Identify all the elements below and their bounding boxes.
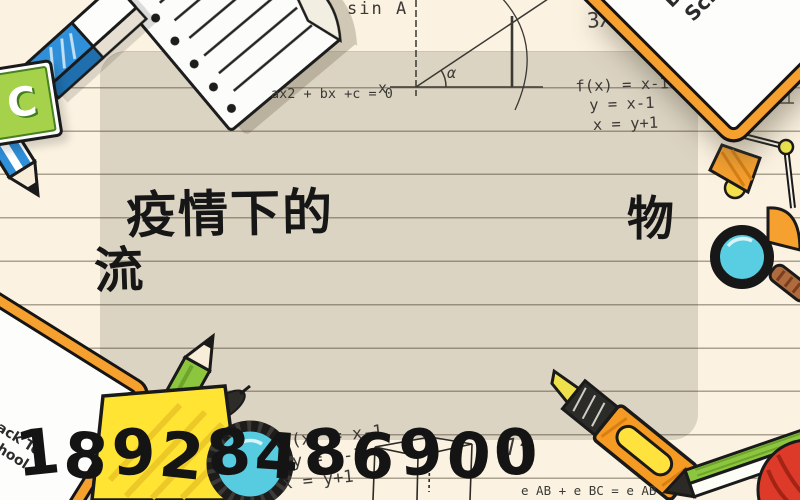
title-prefix: 疫情下的 bbox=[125, 172, 334, 248]
title-char-liu: 流 bbox=[93, 230, 146, 303]
formula-group-top: f(x) = x-1 y = x-1 x = y+1 bbox=[575, 74, 670, 134]
svg-text:x = y+1: x = y+1 bbox=[593, 114, 659, 134]
svg-text:f(x) = x-1: f(x) = x-1 bbox=[575, 74, 669, 95]
back-to-school-poster: Back To School bbox=[0, 0, 800, 500]
letter-card-letter: C bbox=[4, 78, 40, 128]
title-char-wu: 物 bbox=[627, 180, 676, 249]
formula-quadratic: ax2 + bx +c = 0 bbox=[271, 86, 393, 102]
svg-text:y = x-1: y = x-1 bbox=[589, 94, 655, 114]
angle-alpha-label: α bbox=[447, 64, 457, 82]
phone-number: 18928486900 bbox=[16, 418, 586, 491]
letter-card-face: C bbox=[0, 66, 57, 141]
notebook-top-right-label: Back To School bbox=[647, 0, 764, 41]
trig-diagram bbox=[390, 0, 560, 110]
formula-sin: sin A bbox=[347, 0, 408, 19]
